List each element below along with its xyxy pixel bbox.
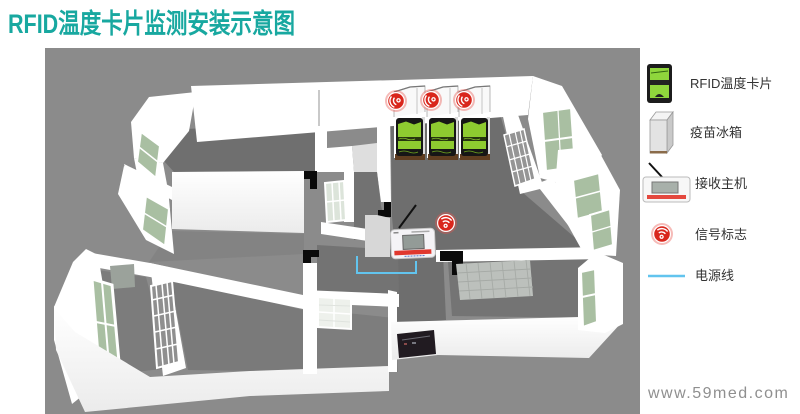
svg-text:RFID温度卡片监测安装示意图: RFID温度卡片监测安装示意图 — [8, 8, 295, 39]
svg-text:接收主机: 接收主机 — [695, 176, 747, 191]
svg-text:电源线: 电源线 — [695, 268, 734, 283]
svg-text:RFID温度卡片: RFID温度卡片 — [690, 76, 772, 91]
svg-text:疫苗冰箱: 疫苗冰箱 — [690, 125, 742, 140]
svg-text:www.59med.com: www.59med.com — [647, 385, 789, 402]
svg-text:信号标志: 信号标志 — [695, 227, 747, 242]
